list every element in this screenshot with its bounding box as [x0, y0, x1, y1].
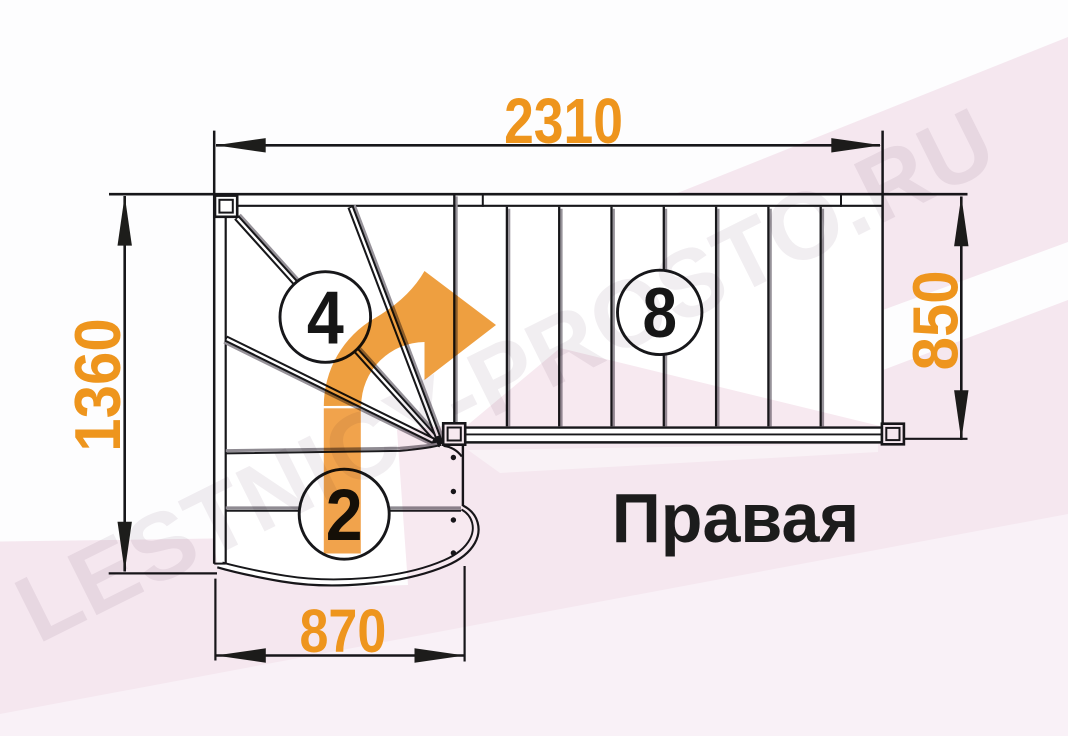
svg-text:870: 870	[300, 598, 387, 666]
svg-text:850: 850	[901, 270, 972, 370]
svg-text:4: 4	[307, 277, 344, 361]
svg-text:Правая: Правая	[612, 478, 860, 557]
svg-text:1360: 1360	[63, 318, 134, 451]
svg-text:2310: 2310	[504, 84, 623, 157]
